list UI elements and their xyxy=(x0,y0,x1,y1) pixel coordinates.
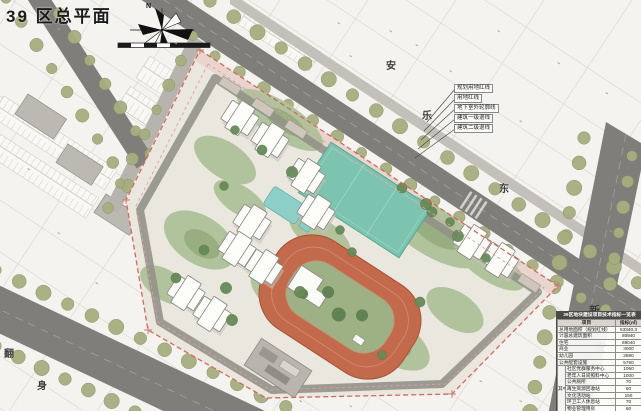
table-row: 公共厕所70 xyxy=(558,379,641,386)
legend-item: 规划用地红线 xyxy=(454,83,499,93)
table-row: 总用地面积（规划红线）53340.3 xyxy=(558,326,641,333)
road-name-char: 身 xyxy=(37,377,47,392)
table-row: 商业3000 xyxy=(558,346,641,353)
road-name-char: 乐 xyxy=(422,107,432,122)
table-row: 环卫工人休息站70 xyxy=(558,399,641,406)
road-name-char: 东 xyxy=(499,180,509,195)
legend-item: 建筑一级退线 xyxy=(454,113,499,123)
table-row: 幼儿园2880 xyxy=(558,352,641,359)
table-group-label: 其中 xyxy=(558,366,566,411)
table-header-row: 项目 指标(㎡) xyxy=(558,320,641,327)
road-name-char: 安 xyxy=(386,57,396,72)
indicator-table: 39区地块建设项目技术指标一览表 项目 指标(㎡) 总用地面积（规划红线）533… xyxy=(556,311,641,411)
north-label: N xyxy=(146,3,151,10)
table-row: 物业管理用房60 xyxy=(558,405,641,411)
legend-item: 用地红线 xyxy=(454,93,499,103)
table-row: 公共配套设施5760 xyxy=(558,359,641,366)
table-row: 文化活动站150 xyxy=(558,392,641,399)
road-name-char: 翻 xyxy=(4,345,14,360)
page-title: 39 区总平面 xyxy=(6,2,112,27)
legend: 规划用地红线 用地红线 地下室外轮廓线 建筑一级退线 建筑二级退线 xyxy=(454,83,499,133)
table-row: 住宅69040 xyxy=(558,339,641,346)
table-row: 老年人日间照料中心1000 xyxy=(558,372,641,379)
indicator-table-title: 39区地块建设项目技术指标一览表 xyxy=(557,312,641,319)
table-row: 其中 社区党群服务中心1060 xyxy=(558,366,641,373)
site-plan-canvas: 39 区总平面 N 规划用地红线 用地红线 地下室外轮廓线 建筑一级退线 建筑二… xyxy=(0,0,641,411)
table-row: 再生资源回收站60 xyxy=(558,385,641,392)
scale-bar xyxy=(118,43,210,48)
table-row: 计容总建筑面积80940 xyxy=(558,333,641,340)
legend-item: 建筑二级退线 xyxy=(454,123,499,133)
legend-item: 地下室外轮廓线 xyxy=(454,103,499,113)
plan-drawing xyxy=(0,0,641,411)
